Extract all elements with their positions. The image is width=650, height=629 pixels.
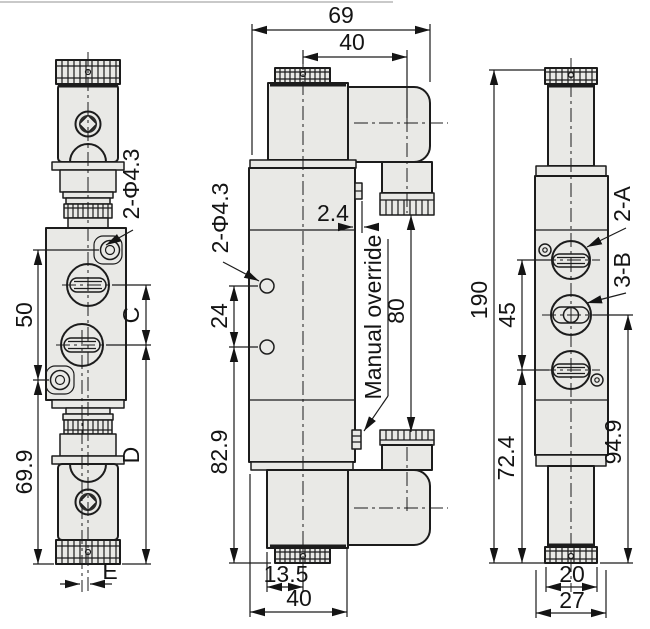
dim-72-4: 72.4 — [493, 435, 519, 480]
end-view: 190 45 72.4 94.9 2-A 3-B 20 27 — [466, 58, 635, 618]
mount-hole-bottom — [51, 371, 70, 390]
pilot-hole-right — [591, 374, 603, 386]
pilot-hole-left — [539, 244, 551, 256]
dim-40-top: 40 — [339, 29, 365, 55]
valve-technical-drawing: 50 69.9 C D E 2-Φ4.3 — [0, 0, 650, 629]
solenoid-block — [267, 470, 348, 548]
dim-27: 27 — [559, 587, 585, 613]
dim-c: C — [118, 307, 144, 324]
ext-2-4 — [355, 201, 362, 233]
dim-80: 80 — [383, 298, 409, 324]
din-connector-arm — [348, 87, 430, 162]
dim-69-9: 69.9 — [11, 450, 37, 495]
cable-gland — [380, 430, 434, 445]
dim-94-9: 94.9 — [600, 420, 626, 465]
manual-override-leader — [364, 396, 388, 431]
front-view: 50 69.9 C D E 2-Φ4.3 — [11, 52, 151, 592]
hole-callout: 2-Φ4.3 — [207, 183, 233, 254]
port-b-label: 3-B — [609, 252, 635, 288]
solenoid-block — [268, 83, 348, 160]
side-view: 69 40 2.4 2-Φ4.3 24 82.9 80 Manual overr… — [206, 2, 448, 617]
dim-82-9: 82.9 — [206, 430, 232, 475]
dim-13-5: 13.5 — [264, 561, 309, 587]
port-a-label: 2-A — [609, 185, 635, 221]
dim-20: 20 — [559, 561, 585, 587]
dim-e: E — [102, 558, 117, 584]
dim-69: 69 — [328, 2, 354, 28]
dim-40-bottom: 40 — [286, 585, 312, 611]
dim-45: 45 — [494, 302, 520, 328]
dim-50: 50 — [11, 302, 37, 328]
dim-d: D — [118, 447, 144, 464]
mount-hole-2 — [260, 340, 274, 354]
mount-hole-1 — [260, 279, 274, 293]
manual-override-button — [352, 430, 361, 449]
dim-24: 24 — [206, 303, 232, 329]
dim-2-4: 2.4 — [317, 200, 349, 226]
flange — [251, 462, 353, 470]
hole-callout: 2-Φ4.3 — [118, 149, 144, 220]
drawing-canvas: 50 69.9 C D E 2-Φ4.3 — [0, 0, 650, 629]
manual-override-label: Manual override — [360, 235, 386, 400]
front-valve-body — [46, 228, 126, 400]
dim-190: 190 — [466, 281, 492, 319]
